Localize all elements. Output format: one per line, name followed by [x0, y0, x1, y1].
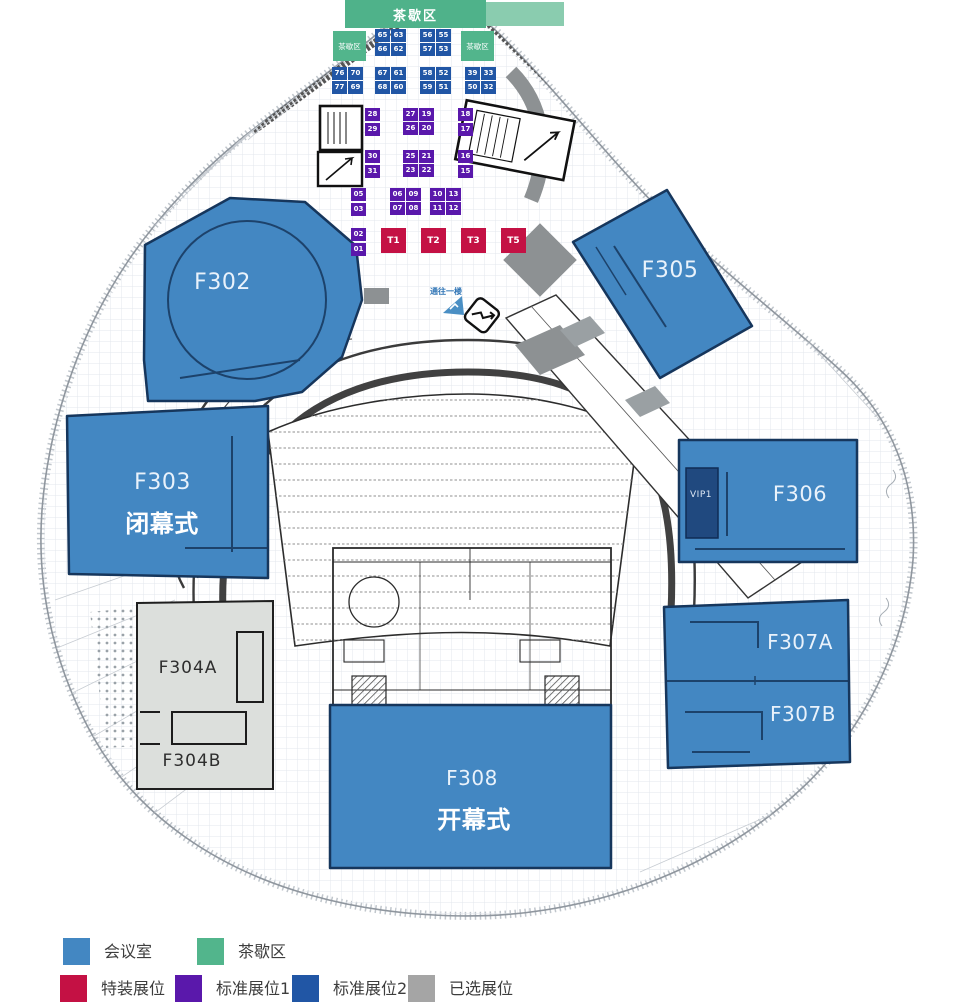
booth-group: 1817 — [458, 108, 473, 136]
booth-cell[interactable]: 29 — [365, 123, 380, 136]
booth-group: 27192620 — [403, 108, 434, 135]
booth-cell[interactable]: 51 — [436, 81, 451, 94]
room-label-f307b: F307B — [758, 702, 848, 726]
booth-group: 1615 — [458, 150, 473, 178]
booth-cell[interactable]: 03 — [351, 203, 366, 216]
room-f305[interactable] — [573, 190, 752, 378]
legend-item-standard-booth-2: 标准展位2 — [292, 975, 407, 1002]
booth-cell[interactable]: 56 — [420, 29, 435, 42]
booth-cell[interactable]: 61 — [391, 67, 406, 80]
booth-cell[interactable]: 23 — [403, 164, 418, 177]
room-label-f302: F302 — [165, 270, 280, 295]
room-label-vip1: VIP1 — [682, 490, 720, 500]
room-label-f305: F305 — [625, 258, 715, 283]
booth-cell[interactable]: 28 — [365, 108, 380, 121]
room-label-f304a: F304A — [133, 658, 243, 678]
legend-swatch — [292, 975, 319, 1002]
booth-group: 10131112 — [430, 188, 461, 215]
booth-group: 65636662 — [375, 29, 406, 56]
booth-group: 56555753 — [420, 29, 451, 56]
tea-area-left: 茶歇区 — [333, 31, 366, 61]
booth-cell[interactable]: 77 — [332, 81, 347, 94]
booth-cell[interactable]: 18 — [458, 108, 473, 121]
booth-t1[interactable]: T1 — [381, 228, 406, 253]
booth-cell[interactable]: 57 — [420, 43, 435, 56]
booth-group: 58525951 — [420, 67, 451, 94]
booth-cell[interactable]: 05 — [351, 188, 366, 201]
room-subtitle-f308: 开幕式 — [394, 800, 554, 835]
legend-swatch — [175, 975, 202, 1002]
legend-label: 标准展位1 — [216, 975, 290, 1002]
booth-cell[interactable]: 76 — [332, 67, 347, 80]
booth-cell[interactable]: 15 — [458, 165, 473, 178]
legend-swatch — [63, 938, 90, 965]
room-f302[interactable] — [144, 198, 362, 401]
booth-cell[interactable]: 16 — [458, 150, 473, 163]
room-label-f307a: F307A — [755, 630, 845, 654]
booth-group: 06090708 — [390, 188, 421, 215]
booth-cell[interactable]: 07 — [390, 202, 405, 215]
legend-item-special-booth: 特装展位 — [60, 975, 165, 1002]
booth-cell[interactable]: 33 — [481, 67, 496, 80]
legend-label: 茶歇区 — [238, 938, 286, 965]
booth-cell[interactable]: 06 — [390, 188, 405, 201]
booth-cell[interactable]: 68 — [375, 81, 390, 94]
legend-label: 已选展位 — [449, 975, 513, 1002]
booth-cell[interactable]: 01 — [351, 243, 366, 256]
floorplan-app: 茶歇区 茶歇区 茶歇区 65636662 56555753 76707769 6… — [0, 0, 958, 992]
booth-cell[interactable]: 32 — [481, 81, 496, 94]
booth-cell[interactable]: 52 — [436, 67, 451, 80]
legend-item-meeting-room: 会议室 — [63, 938, 152, 965]
booth-cell[interactable]: 08 — [406, 202, 421, 215]
legend-swatch — [408, 975, 435, 1002]
booth-cell[interactable]: 27 — [403, 108, 418, 121]
booth-cell[interactable]: 63 — [391, 29, 406, 42]
booth-cell[interactable]: 31 — [365, 165, 380, 178]
tea-area-right: 茶歇区 — [461, 31, 494, 61]
booth-group: 3031 — [365, 150, 380, 178]
booth-group: 67616860 — [375, 67, 406, 94]
booth-cell[interactable]: 19 — [419, 108, 434, 121]
booth-cell[interactable]: 20 — [419, 122, 434, 135]
booth-cell[interactable]: 50 — [465, 81, 480, 94]
booth-cell[interactable]: 25 — [403, 150, 418, 163]
room-vip1[interactable] — [686, 468, 718, 538]
legend-label: 特装展位 — [101, 975, 165, 1002]
room-subtitle-f303: 闭幕式 — [92, 504, 232, 539]
booth-cell[interactable]: 13 — [446, 188, 461, 201]
booth-group: 76707769 — [332, 67, 363, 94]
booth-cell[interactable]: 17 — [458, 123, 473, 136]
booth-cell[interactable]: 12 — [446, 202, 461, 215]
legend-swatch — [197, 938, 224, 965]
room-label-f303: F303 — [105, 470, 220, 495]
legend-label: 标准展位2 — [333, 975, 407, 1002]
room-label-f308: F308 — [402, 766, 542, 790]
booth-cell[interactable]: 62 — [391, 43, 406, 56]
to-first-floor-note: 通往一楼 — [418, 286, 474, 297]
legend-item-tea-area: 茶歇区 — [197, 938, 286, 965]
tea-area-banner: 茶歇区 — [345, 0, 486, 28]
booth-cell[interactable]: 30 — [365, 150, 380, 163]
booth-group: 0201 — [351, 228, 366, 256]
booth-cell[interactable]: 09 — [406, 188, 421, 201]
booth-t5[interactable]: T5 — [501, 228, 526, 253]
legend-swatch — [60, 975, 87, 1002]
booth-cell[interactable]: 67 — [375, 67, 390, 80]
booth-cell[interactable]: 65 — [375, 29, 390, 42]
room-label-f304b: F304B — [137, 751, 247, 771]
booth-group: 2829 — [365, 108, 380, 136]
booth-cell[interactable]: 02 — [351, 228, 366, 241]
booth-cell[interactable]: 55 — [436, 29, 451, 42]
legend-item-standard-booth-1: 标准展位1 — [175, 975, 290, 1002]
booth-cell[interactable]: 21 — [419, 150, 434, 163]
legend-label: 会议室 — [104, 938, 152, 965]
booth-cell[interactable]: 26 — [403, 122, 418, 135]
booth-cell[interactable]: 22 — [419, 164, 434, 177]
booth-cell[interactable]: 60 — [391, 81, 406, 94]
booth-cell[interactable]: 11 — [430, 202, 445, 215]
booth-cell[interactable]: 59 — [420, 81, 435, 94]
booth-group: 0503 — [351, 188, 366, 216]
booth-group: 39335032 — [465, 67, 496, 94]
booth-t3[interactable]: T3 — [461, 228, 486, 253]
booth-cell[interactable]: 70 — [348, 67, 363, 80]
legend-item-selected-booth: 已选展位 — [408, 975, 513, 1002]
booth-cell[interactable]: 69 — [348, 81, 363, 94]
booth-cell[interactable]: 53 — [436, 43, 451, 56]
booth-cell[interactable]: 58 — [420, 67, 435, 80]
booth-cell[interactable]: 10 — [430, 188, 445, 201]
tea-area-extension — [486, 2, 564, 26]
booth-cell[interactable]: 66 — [375, 43, 390, 56]
booth-group: 25212322 — [403, 150, 434, 177]
room-label-f306: F306 — [745, 482, 855, 506]
booth-cell[interactable]: 39 — [465, 67, 480, 80]
booth-t2[interactable]: T2 — [421, 228, 446, 253]
